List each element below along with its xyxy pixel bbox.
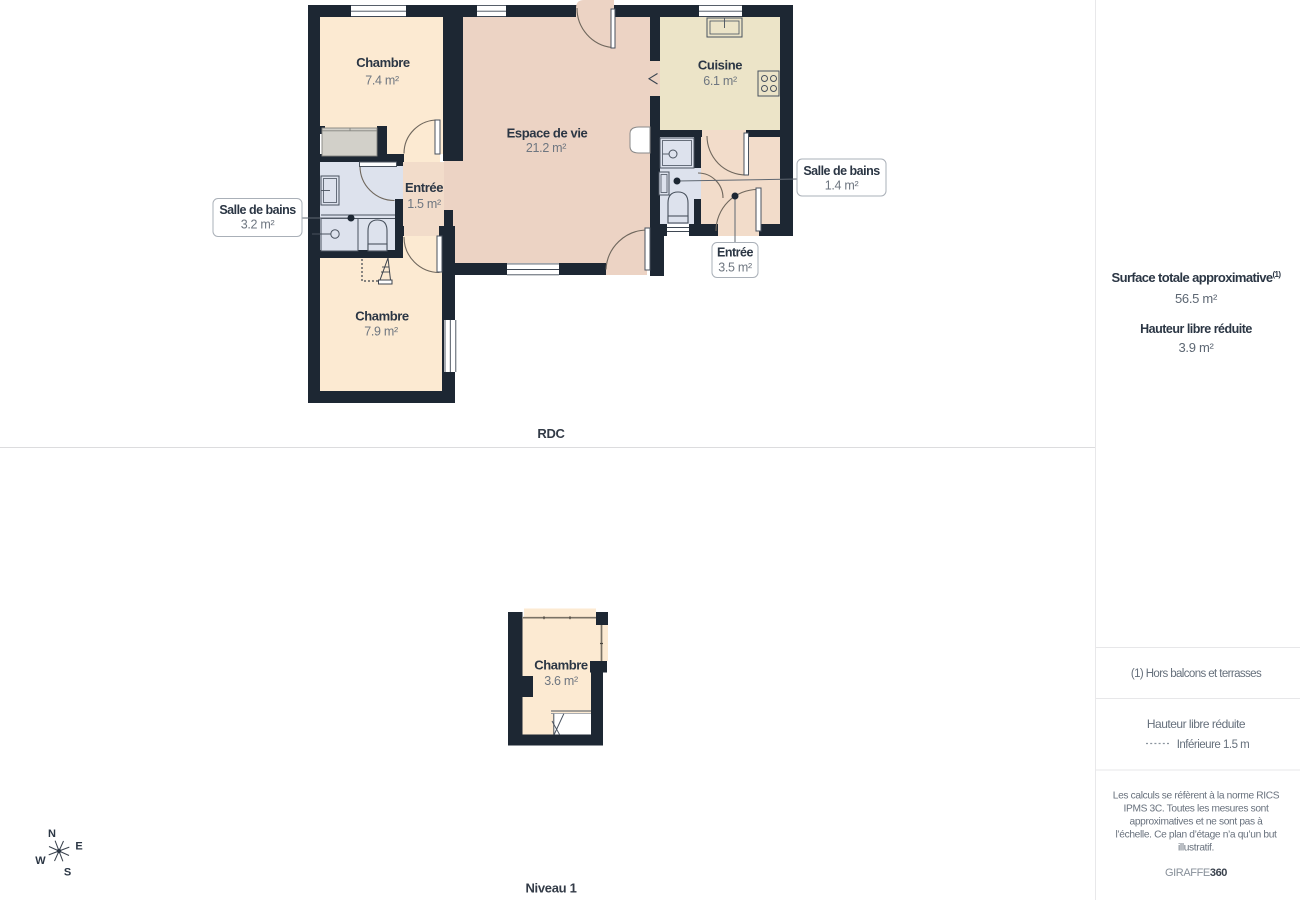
svg-text:3.6 m²: 3.6 m² (544, 674, 578, 688)
svg-text:56.5 m²: 56.5 m² (1175, 291, 1218, 306)
svg-text:S: S (64, 867, 71, 879)
svg-text:21.2 m²: 21.2 m² (526, 141, 566, 155)
svg-text:N: N (48, 828, 56, 840)
svg-text:Surface totale approximative(1: Surface totale approximative(1) (1112, 270, 1282, 285)
svg-text:E: E (75, 841, 82, 853)
svg-text:illustratif.: illustratif. (1178, 843, 1214, 854)
svg-text:3.9 m²: 3.9 m² (1178, 340, 1214, 355)
svg-text:GIRAFFE360: GIRAFFE360 (1165, 867, 1227, 879)
svg-text:1.5 m²: 1.5 m² (407, 197, 441, 211)
svg-text:Entrée: Entrée (717, 246, 753, 260)
svg-text:IPMS 3C. Toutes les mesures so: IPMS 3C. Toutes les mesures sont (1124, 804, 1269, 815)
svg-text:3.2 m²: 3.2 m² (241, 218, 275, 232)
svg-text:1.4 m²: 1.4 m² (825, 179, 859, 193)
svg-text:Niveau 1: Niveau 1 (525, 881, 576, 896)
svg-text:RDC: RDC (537, 426, 565, 441)
svg-text:Salle de bains: Salle de bains (219, 203, 296, 217)
svg-text:3.5 m²: 3.5 m² (718, 261, 752, 275)
svg-text:7.4 m²: 7.4 m² (365, 74, 399, 88)
svg-text:W: W (35, 855, 46, 867)
svg-text:7.9 m²: 7.9 m² (364, 325, 398, 339)
svg-text:Cuisine: Cuisine (698, 58, 742, 73)
svg-text:Hauteur libre réduite: Hauteur libre réduite (1140, 322, 1252, 336)
svg-text:Inférieure 1.5 m: Inférieure 1.5 m (1177, 739, 1250, 751)
svg-text:Chambre: Chambre (534, 658, 588, 673)
svg-text:l’échelle. Ce plan d’étage n’a: l’échelle. Ce plan d’étage n’a qu’un but (1115, 830, 1277, 841)
svg-text:Espace de vie: Espace de vie (507, 126, 588, 141)
svg-text:6.1 m²: 6.1 m² (703, 74, 737, 88)
svg-text:(1) Hors balcons et terrasses: (1) Hors balcons et terrasses (1131, 668, 1262, 680)
svg-text:Hauteur libre réduite: Hauteur libre réduite (1147, 717, 1246, 731)
svg-text:approximatives et ne sont pas: approximatives et ne sont pas à (1130, 817, 1264, 828)
svg-text:Entrée: Entrée (405, 180, 443, 195)
svg-text:Les calculs se réfèrent à la n: Les calculs se réfèrent à la norme RICS (1113, 791, 1280, 802)
svg-text:Chambre: Chambre (355, 309, 409, 324)
svg-text:Chambre: Chambre (356, 55, 410, 70)
svg-text:Salle de bains: Salle de bains (803, 164, 880, 178)
